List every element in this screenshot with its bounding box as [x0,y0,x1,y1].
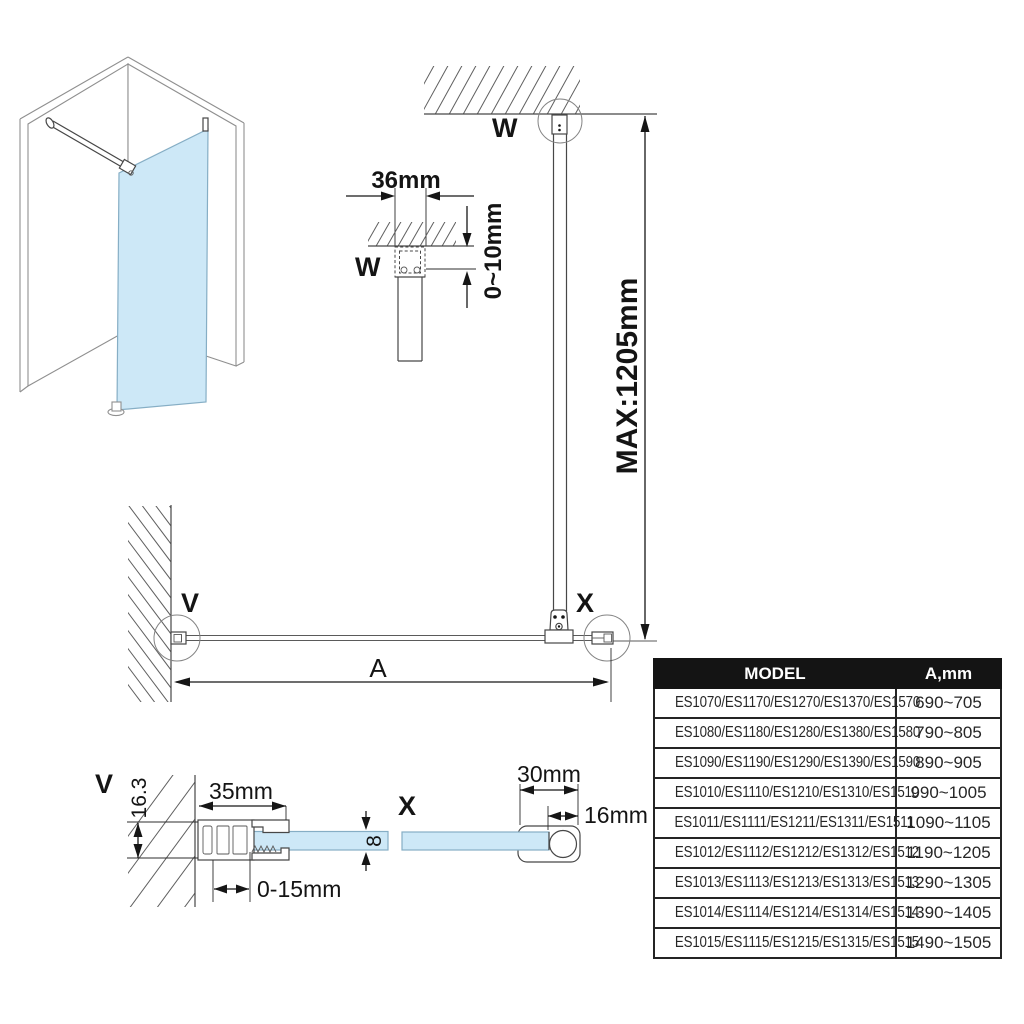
detail-v: V 16.3 [95,745,388,991]
dim-16mm-label: 16mm [584,802,648,828]
dim-36mm-label: 36mm [371,167,440,194]
model-cell: ES1011/ES1111/ES1211/ES1311/ES1511 [654,808,896,838]
dim-16-3-label: 16.3 [128,778,151,819]
table-header-amm: A,mm [896,659,1001,688]
table-row: ES1014/ES1114/ES1214/ES1314/ES15141390~1… [654,898,1001,928]
table-row: ES1080/ES1180/ES1280/ES1380/ES1580790~80… [654,718,1001,748]
model-cell: ES1070/ES1170/ES1270/ES1370/ES1570 [654,688,896,718]
plan-glass-line [186,636,657,642]
wall-bracket [171,632,186,644]
isometric-view [20,57,244,416]
model-table: MODEL A,mm ES1070/ES1170/ES1270/ES1370/E… [653,658,1000,959]
gap-dimension: 0~10mm [426,203,507,308]
detail-x: X 30mm 16mm [398,761,648,862]
model-cell: ES1090/ES1190/ES1290/ES1390/ES1590 [654,748,896,778]
end-clamp [592,632,613,644]
detail-x-label: X [398,791,416,821]
model-cell: ES1010/ES1110/ES1210/ES1310/ES1510 [654,778,896,808]
technical-drawing-page: W MAX:1205mm [0,0,1024,1024]
model-cell: ES1080/ES1180/ES1280/ES1380/ES1580 [654,718,896,748]
plan-label-v: V [181,588,199,618]
max-dimension: MAX:1205mm [611,116,650,640]
detail-v-label: V [95,769,113,799]
model-cell: ES1014/ES1114/ES1214/ES1314/ES1514 [654,898,896,928]
plan-support-bar [552,114,567,611]
glass-connector-block [545,630,573,643]
model-cell: ES1013/ES1113/ES1213/ES1313/ES1513 [654,868,896,898]
table-row: ES1070/ES1170/ES1270/ES1370/ES1570690~70… [654,688,1001,718]
detail-w-bracket [395,247,425,277]
max-dimension-label: MAX:1205mm [611,278,644,475]
table-row: ES1012/ES1112/ES1212/ES1312/ES15121190~1… [654,838,1001,868]
dim-0-15mm-label: 0-15mm [257,876,341,902]
bar-bracket [550,610,568,630]
table-row: ES1090/ES1190/ES1290/ES1390/ES1590890~90… [654,748,1001,778]
table-row: ES1013/ES1113/ES1213/ES1313/ES15131290~1… [654,868,1001,898]
detail-x-glass [402,832,549,850]
table-header-row: MODEL A,mm [654,659,1001,688]
model-cell: ES1012/ES1112/ES1212/ES1312/ES1512 [654,838,896,868]
a-dimension-label: A [369,653,387,683]
detail-w-label: W [355,252,381,282]
plan-label-x: X [576,588,594,618]
a-dimension: A [174,648,611,702]
iso-top-pin [203,118,208,131]
detail-w: W 36mm [346,167,507,361]
detail-w-hatch [364,220,468,248]
dim-8-label: 8 [363,835,386,847]
table-header-model: MODEL [654,659,896,688]
table-row: ES1011/ES1111/ES1211/ES1311/ES15111090~1… [654,808,1001,838]
glass-thickness-dimension: 8 [362,811,387,871]
profile-width-dimension: 35mm [199,778,286,820]
ceiling-hatch [404,62,604,120]
dim-0-10mm-label: 0~10mm [480,203,507,300]
model-cell: ES1015/ES1115/ES1215/ES1315/ES1515 [654,928,896,958]
dim-30mm-label: 30mm [517,761,581,787]
detail-w-bar [398,277,422,361]
table-row: ES1010/ES1110/ES1210/ES1310/ES1510990~10… [654,778,1001,808]
model-table-body: ES1070/ES1170/ES1270/ES1370/ES1570690~70… [654,688,1001,958]
iso-left-wall [20,57,128,392]
plan-label-w: W [492,113,518,143]
table-row: ES1015/ES1115/ES1215/ES1315/ES15151490~1… [654,928,1001,958]
dim-35mm-label: 35mm [209,778,273,804]
